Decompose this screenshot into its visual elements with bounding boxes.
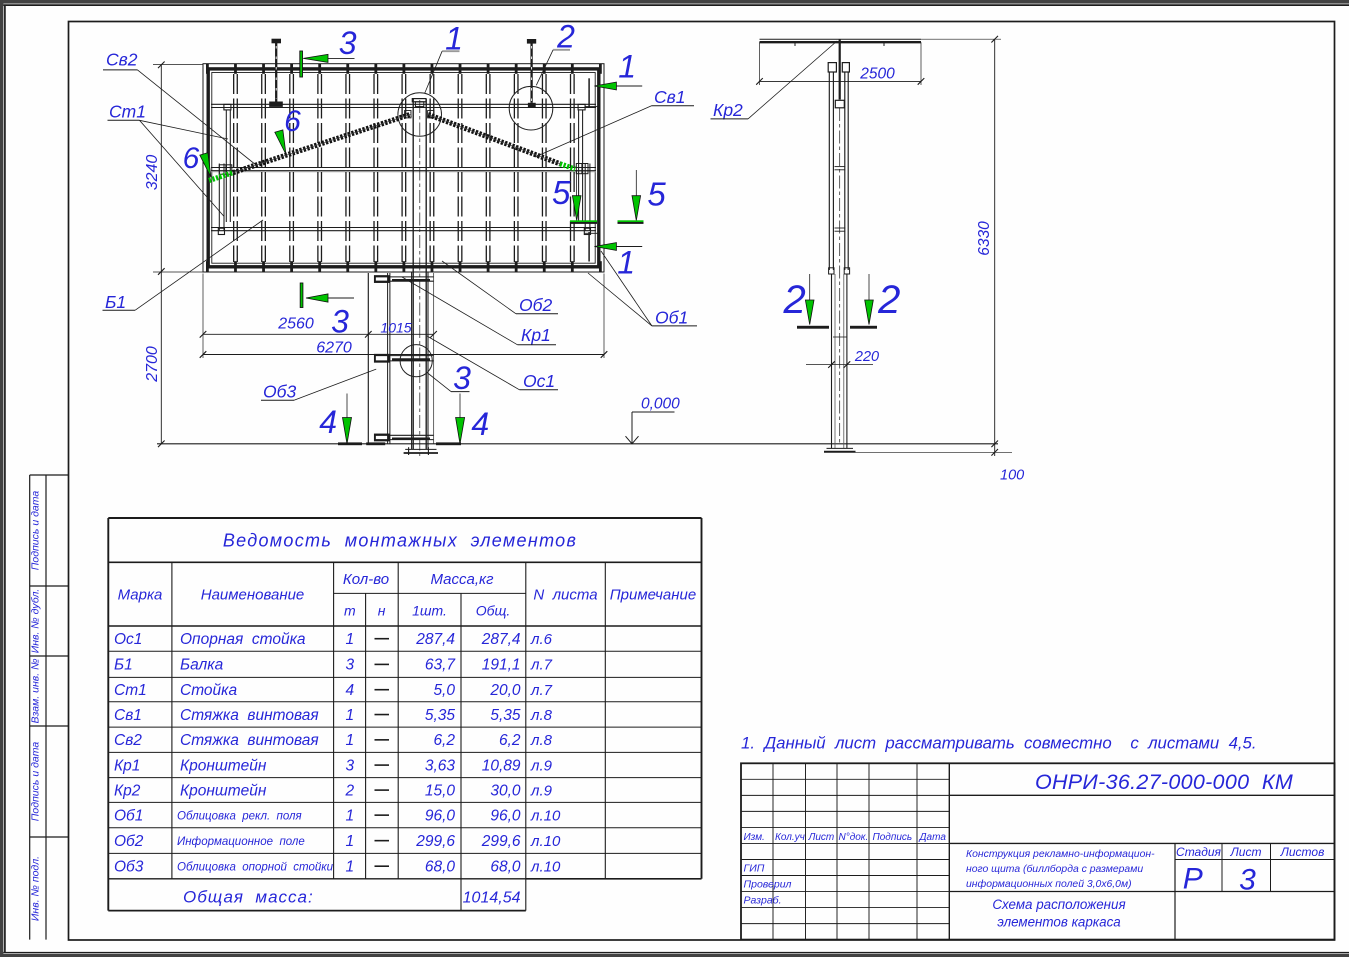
svg-text:96,0: 96,0 (425, 807, 456, 824)
svg-text:Общ.: Общ. (476, 603, 511, 619)
svg-text:Лист: Лист (808, 832, 835, 843)
svg-text:л.7: л.7 (530, 682, 553, 699)
svg-text:3: 3 (339, 25, 357, 61)
svg-text:Дата: Дата (919, 832, 947, 843)
svg-text:Ос1: Ос1 (523, 371, 555, 391)
svg-text:ОНРИ-36.27-000-000 КМ: ОНРИ-36.27-000-000 КМ (1035, 770, 1293, 794)
svg-text:Стадия: Стадия (1176, 845, 1222, 859)
svg-text:2560: 2560 (277, 315, 314, 332)
svg-text:1: 1 (345, 833, 354, 850)
svg-text:100: 100 (1000, 468, 1024, 484)
svg-text:Балка: Балка (180, 657, 224, 674)
svg-text:Разраб.: Разраб. (744, 895, 782, 907)
svg-text:3: 3 (345, 657, 354, 674)
svg-text:л.8: л.8 (530, 732, 553, 749)
svg-text:1шт.: 1шт. (412, 603, 447, 619)
svg-text:1: 1 (345, 631, 354, 648)
svg-text:299,6: 299,6 (481, 833, 521, 850)
svg-text:2700: 2700 (144, 346, 161, 383)
svg-text:220: 220 (854, 349, 879, 365)
svg-text:191,1: 191,1 (482, 657, 521, 674)
svg-text:л.9: л.9 (530, 757, 553, 774)
svg-text:3: 3 (453, 360, 471, 396)
svg-text:Облицовка опорной стойки: Облицовка опорной стойки (177, 861, 334, 873)
svg-text:Об1: Об1 (114, 807, 143, 824)
svg-text:л.7: л.7 (530, 657, 553, 674)
svg-text:3,63: 3,63 (425, 757, 456, 774)
svg-text:Ос1: Ос1 (114, 631, 142, 648)
svg-text:Конструкция рекламно-информаци: Конструкция рекламно-информацион- (966, 848, 1155, 860)
svg-text:1: 1 (618, 48, 636, 84)
svg-text:Б1: Б1 (105, 292, 126, 312)
svg-text:Ст1: Ст1 (109, 102, 146, 122)
svg-text:1014,54: 1014,54 (463, 890, 521, 907)
svg-text:Инв. № подл.: Инв. № подл. (30, 856, 42, 921)
svg-text:2: 2 (877, 278, 900, 322)
svg-text:3240: 3240 (144, 155, 161, 191)
svg-text:63,7: 63,7 (425, 657, 457, 674)
svg-text:5,0: 5,0 (433, 682, 455, 699)
svg-text:5,35: 5,35 (490, 707, 521, 724)
svg-text:1: 1 (345, 732, 354, 749)
svg-text:1. Данный лист рассматриват: 1. Данный лист рассматривать совместно с… (741, 734, 1257, 753)
svg-text:Об3: Об3 (263, 382, 296, 402)
svg-text:30,0: 30,0 (490, 782, 521, 799)
svg-text:3: 3 (345, 757, 354, 774)
svg-text:Кр2: Кр2 (114, 782, 141, 799)
svg-text:20,0: 20,0 (489, 682, 521, 699)
svg-text:Подпись и дата: Подпись и дата (30, 742, 42, 822)
svg-text:4: 4 (319, 404, 337, 440)
svg-text:Св2: Св2 (114, 732, 142, 749)
svg-text:10,89: 10,89 (482, 757, 521, 774)
svg-text:Об2: Об2 (519, 295, 552, 315)
svg-text:15,0: 15,0 (425, 782, 456, 799)
svg-text:Кр1: Кр1 (521, 325, 551, 345)
svg-text:96,0: 96,0 (490, 807, 521, 824)
svg-text:Листов: Листов (1280, 845, 1325, 859)
svg-text:N листа: N листа (533, 587, 597, 604)
svg-text:л.10: л.10 (530, 833, 561, 850)
svg-text:Марка: Марка (118, 587, 163, 604)
svg-text:Стойка: Стойка (180, 682, 237, 699)
svg-text:5: 5 (647, 175, 666, 212)
svg-text:6270: 6270 (316, 340, 352, 357)
svg-text:6: 6 (284, 105, 301, 138)
svg-text:Проверил: Проверил (744, 879, 792, 891)
svg-text:Св1: Св1 (654, 87, 686, 107)
svg-text:Подпись: Подпись (873, 832, 913, 843)
svg-text:Об3: Об3 (114, 858, 144, 875)
svg-text:н: н (378, 603, 386, 619)
svg-text:6,2: 6,2 (499, 732, 521, 749)
svg-text:Об2: Об2 (114, 833, 144, 850)
svg-text:6: 6 (183, 142, 200, 175)
svg-text:68,0: 68,0 (425, 858, 456, 875)
svg-text:Масса,кг: Масса,кг (431, 571, 495, 588)
svg-text:Стяжка винтовая: Стяжка винтовая (180, 732, 319, 749)
svg-text:Св1: Св1 (114, 707, 142, 724)
svg-text:Кронштейн: Кронштейн (180, 782, 267, 799)
svg-text:N°док.: N°док. (839, 832, 869, 843)
svg-text:3: 3 (331, 304, 349, 340)
svg-text:Стяжка винтовая: Стяжка винтовая (180, 707, 319, 724)
svg-text:л.9: л.9 (530, 782, 553, 799)
svg-text:Примечание: Примечание (610, 587, 696, 604)
svg-text:информационных полей 3,0х6,0м): информационных полей 3,0х6,0м) (966, 878, 1132, 890)
svg-text:2: 2 (344, 782, 354, 799)
svg-text:элементов каркаса: элементов каркаса (997, 915, 1120, 930)
svg-text:299,6: 299,6 (415, 833, 455, 850)
svg-text:1: 1 (617, 244, 635, 280)
svg-text:Р: Р (1183, 863, 1203, 896)
svg-text:Информационное поле: Информационное поле (177, 836, 305, 848)
svg-text:2500: 2500 (859, 66, 895, 83)
svg-text:Кр1: Кр1 (114, 757, 140, 774)
svg-text:л.10: л.10 (530, 858, 561, 875)
svg-text:Изм.: Изм. (744, 832, 765, 843)
svg-text:Схема расположения: Схема расположения (992, 897, 1125, 912)
svg-text:Ведомость монтажных элементо: Ведомость монтажных элементов (223, 531, 577, 551)
svg-text:1: 1 (345, 707, 354, 724)
svg-text:т: т (344, 603, 356, 619)
svg-text:68,0: 68,0 (490, 858, 521, 875)
svg-text:Общая масса:: Общая масса: (183, 888, 314, 907)
svg-text:л.6: л.6 (530, 631, 553, 648)
svg-text:л.8: л.8 (530, 707, 553, 724)
svg-text:Опорная стойка: Опорная стойка (180, 631, 306, 648)
svg-text:5,35: 5,35 (425, 707, 456, 724)
svg-text:6,2: 6,2 (433, 732, 455, 749)
svg-text:1: 1 (345, 858, 354, 875)
svg-text:1: 1 (345, 807, 354, 824)
svg-text:0,000: 0,000 (641, 396, 680, 413)
svg-text:Инв. № дубл.: Инв. № дубл. (30, 589, 42, 654)
svg-text:ного щита (биллборда с размера: ного щита (биллборда с размерами (966, 863, 1143, 875)
svg-text:Взам. инв. №: Взам. инв. № (30, 659, 42, 724)
svg-text:Кр2: Кр2 (713, 100, 743, 120)
svg-text:Облицовка рекл. поля: Облицовка рекл. поля (177, 810, 302, 822)
svg-text:Кол-во: Кол-во (343, 571, 389, 588)
svg-text:Об1: Об1 (655, 307, 688, 327)
svg-text:Лист: Лист (1230, 845, 1262, 859)
svg-text:ГИП: ГИП (744, 863, 765, 875)
svg-text:л.10: л.10 (530, 807, 561, 824)
svg-text:4: 4 (471, 406, 489, 442)
svg-text:Б1: Б1 (114, 657, 133, 674)
svg-text:3: 3 (1239, 864, 1256, 897)
svg-text:Ст1: Ст1 (114, 682, 147, 699)
svg-text:1015: 1015 (380, 319, 411, 335)
svg-text:6330: 6330 (976, 221, 993, 256)
svg-text:287,4: 287,4 (415, 631, 455, 648)
svg-text:Кол.уч: Кол.уч (775, 832, 805, 843)
svg-text:287,4: 287,4 (481, 631, 521, 648)
svg-text:Наименование: Наименование (201, 587, 305, 604)
svg-text:5: 5 (552, 174, 571, 211)
svg-text:4: 4 (345, 682, 354, 699)
svg-text:2: 2 (782, 278, 805, 322)
svg-text:Подпись и дата: Подпись и дата (30, 491, 42, 571)
svg-text:Св2: Св2 (106, 50, 138, 70)
svg-text:Кронштейн: Кронштейн (180, 757, 267, 774)
